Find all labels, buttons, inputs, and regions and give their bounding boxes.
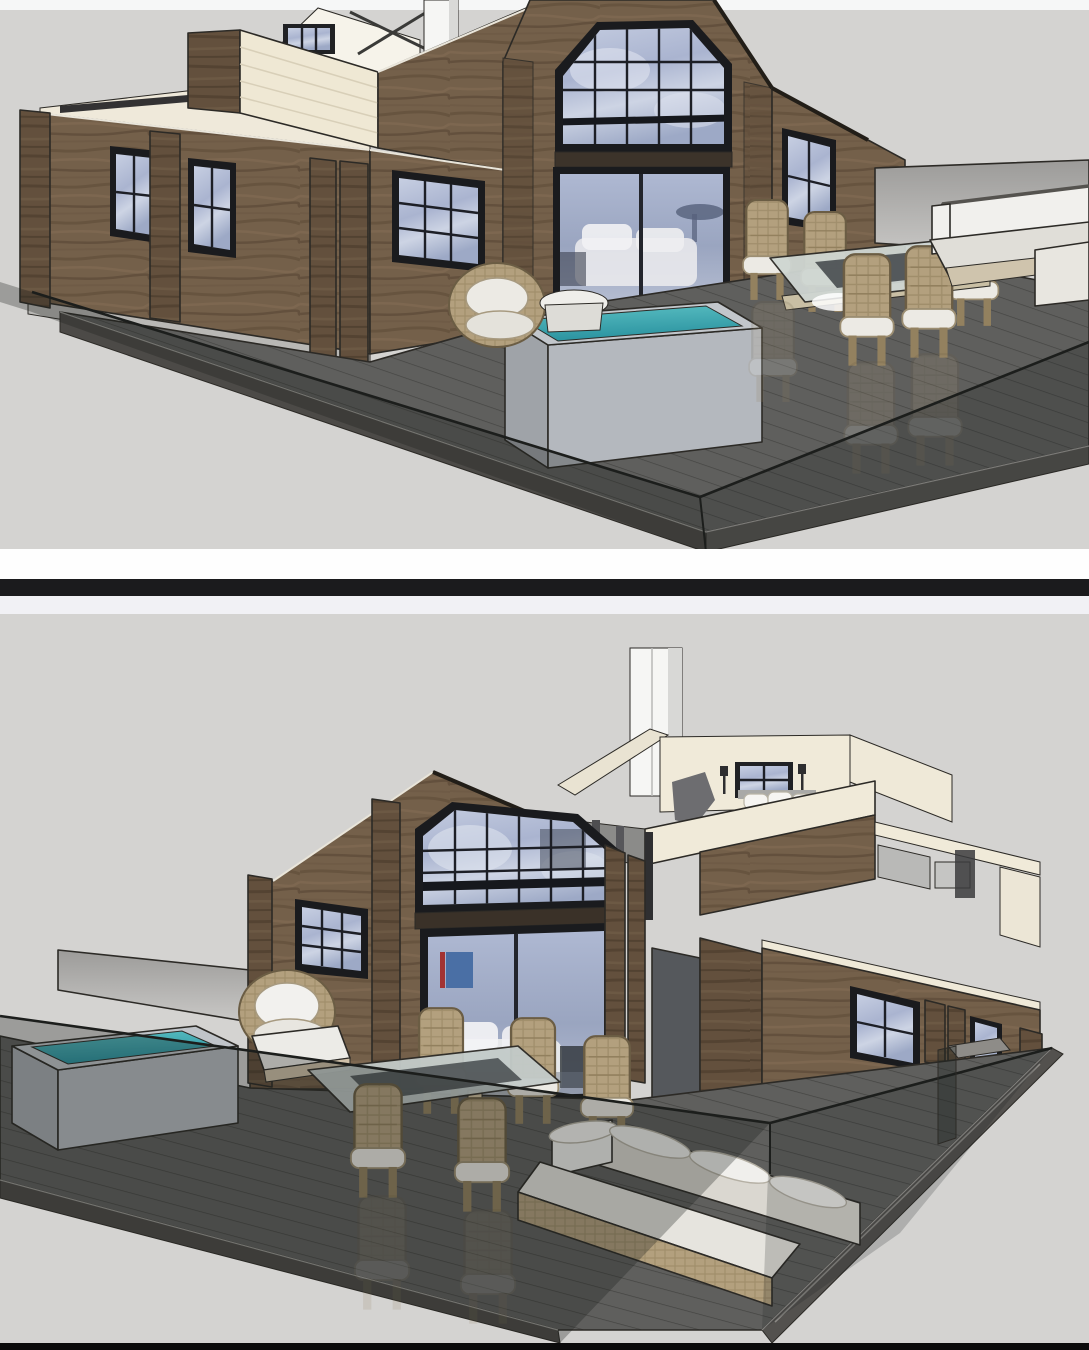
barrel-chair [449, 263, 545, 347]
double-post-a [310, 158, 336, 374]
corner-post [20, 110, 50, 308]
window-left-2 [188, 158, 236, 258]
hot-tub [505, 302, 762, 468]
mid-post [372, 799, 400, 1087]
divider-black-bar [0, 579, 1089, 596]
top-render [0, 0, 1089, 549]
screenshot-root [0, 0, 1089, 1350]
gable-window [555, 20, 735, 152]
window-sw [392, 170, 485, 272]
glass-door-panel [652, 948, 700, 1104]
window-left [295, 899, 368, 979]
divider-light-band [0, 596, 1089, 614]
divider [0, 549, 1089, 614]
divider-white-band [0, 549, 1089, 579]
side-table [540, 290, 608, 332]
gable-band [555, 152, 732, 167]
mid-post [150, 131, 180, 322]
bottom-render [0, 614, 1089, 1343]
glass-panel [938, 1046, 956, 1144]
double-post-b [340, 161, 368, 378]
bottom-black-bar [0, 1343, 1089, 1350]
